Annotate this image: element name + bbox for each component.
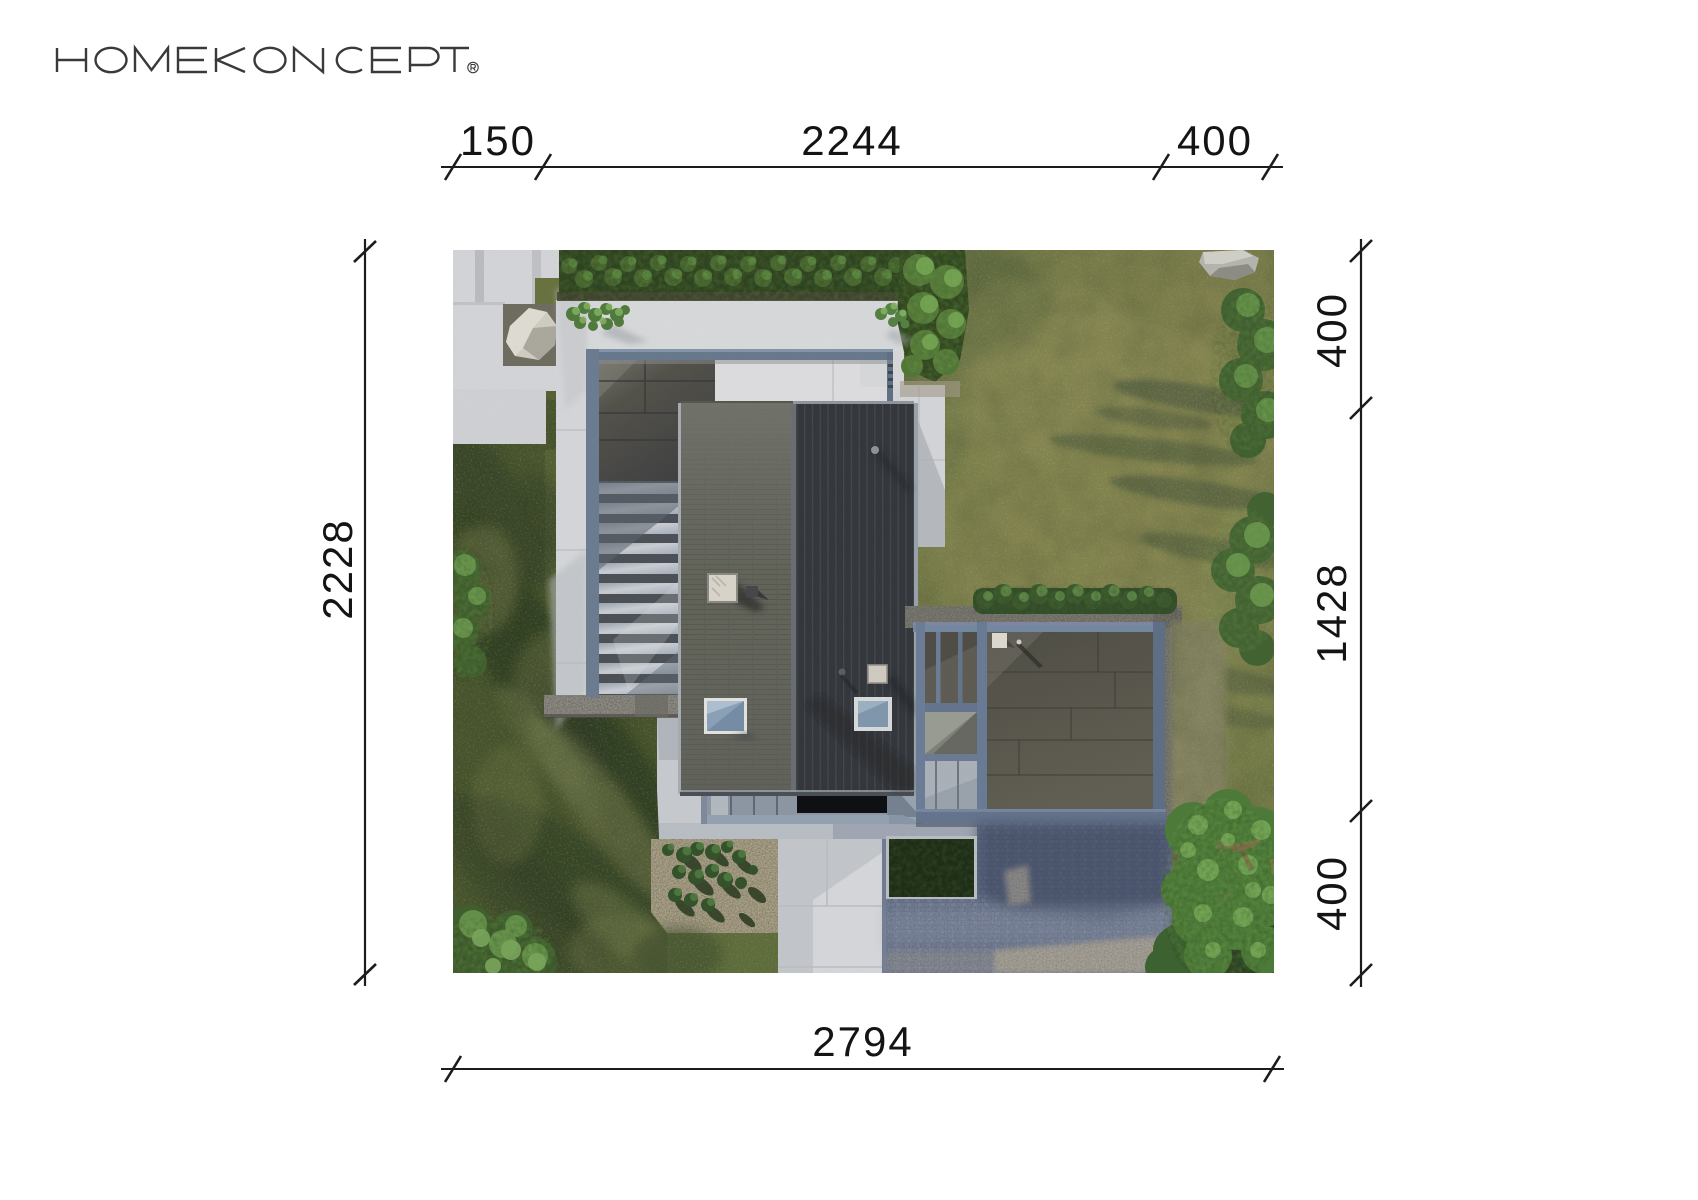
svg-text:400: 400 xyxy=(1308,292,1355,368)
svg-text:2794: 2794 xyxy=(812,1018,913,1065)
svg-text:2228: 2228 xyxy=(314,518,361,619)
svg-text:150: 150 xyxy=(460,117,536,164)
svg-text:1428: 1428 xyxy=(1308,562,1355,663)
svg-text:400: 400 xyxy=(1177,117,1253,164)
svg-text:400: 400 xyxy=(1308,855,1355,931)
svg-text:2244: 2244 xyxy=(801,117,902,164)
